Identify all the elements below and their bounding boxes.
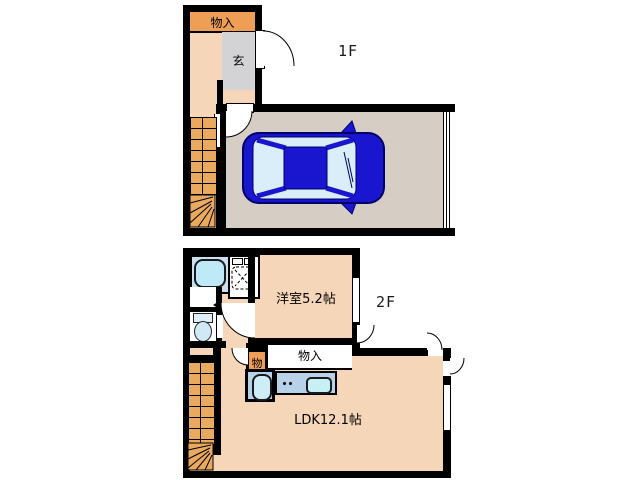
stairs-2f-icon xyxy=(188,362,215,444)
closet-small: 物 xyxy=(246,343,268,372)
western-door-arc-icon xyxy=(221,303,255,338)
stairs-2f-divider xyxy=(200,362,201,443)
burner-dot xyxy=(283,382,286,385)
stairs-1f-divider xyxy=(202,117,203,195)
stairs-1f-icon xyxy=(190,117,217,196)
kitchen-sink-unit xyxy=(245,369,275,402)
wall-western-left xyxy=(248,255,255,303)
wall-2f-bottom xyxy=(183,471,451,478)
floor-plan: 物入 玄 xyxy=(0,0,640,480)
burner-dot-2 xyxy=(289,382,292,385)
western-casement-arc-icon xyxy=(357,325,374,343)
ldk-right-vent-arc-icon xyxy=(450,358,464,374)
storage-1f: 物入 xyxy=(190,12,255,33)
kitchen-counter xyxy=(275,371,337,395)
wall-2f-top xyxy=(183,248,360,255)
western-room-label: 洋室5.2帖 xyxy=(262,293,350,306)
wall-under-toilet xyxy=(183,341,226,348)
ldk-label: LDK12.1帖 xyxy=(278,414,378,427)
kitchen-sink-icon xyxy=(252,374,272,401)
ldk-top-vent-arc-icon xyxy=(427,333,442,350)
wall-stairs2f-top xyxy=(183,355,216,362)
shower-unit xyxy=(228,255,260,299)
toilet-icon xyxy=(194,321,212,342)
entrance-genkan: 玄 xyxy=(222,32,255,90)
window-ldk-icon xyxy=(443,385,451,430)
closet-small-labelbox: 物 xyxy=(249,352,265,369)
closet-futairi: 物入 xyxy=(268,345,352,370)
window-western-icon xyxy=(352,278,360,322)
entrance-label: 玄 xyxy=(232,54,244,68)
wall-1f-left xyxy=(183,5,190,236)
wall-1f-top xyxy=(183,5,262,12)
stairs-2f-winder-icon xyxy=(188,443,214,471)
bathtub-icon xyxy=(194,259,226,288)
stairs-1f-winder-icon xyxy=(190,195,216,228)
stove-icon xyxy=(306,377,332,394)
washer-pan xyxy=(232,258,243,265)
car-icon xyxy=(240,120,388,215)
floor-1-label: 1F xyxy=(338,44,358,59)
garage-shutter-icon xyxy=(443,112,451,228)
floor-2-label: 2F xyxy=(376,295,396,310)
wall-1f-bottom xyxy=(183,228,455,236)
ldk-door-arc-icon xyxy=(232,348,248,365)
storage-1f-label: 物入 xyxy=(210,16,234,30)
entrance-door-arc-icon xyxy=(263,31,295,67)
closet-label: 物入 xyxy=(298,349,322,363)
